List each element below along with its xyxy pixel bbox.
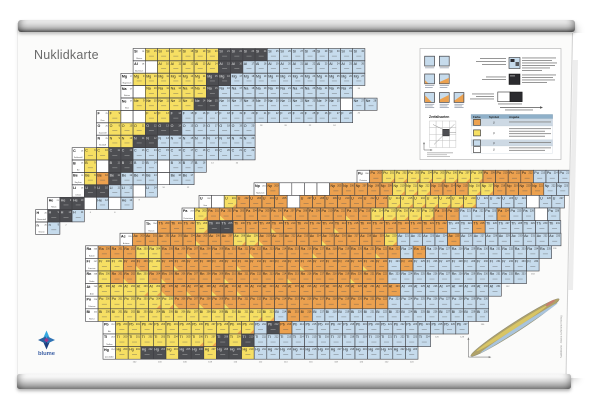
svg-text:Rn: Rn [112,272,117,276]
svg-text:212: 212 [426,184,431,187]
svg-text:Tl: Tl [167,335,170,339]
svg-text:At: At [275,285,278,289]
svg-text:213: 213 [304,235,309,238]
svg-text:Po: Po [338,297,342,301]
svg-text:Bi: Bi [452,310,455,314]
svg-text:221: 221 [370,247,375,250]
svg-text:224: 224 [408,298,413,301]
svg-text:214: 214 [282,285,287,288]
svg-text:Rn: Rn [439,272,444,276]
svg-text:203: 203 [161,336,166,339]
svg-text:220: 220 [358,260,363,263]
svg-text:At: At [124,285,127,289]
svg-text:230: 230 [484,310,489,313]
svg-text:226: 226 [433,247,438,250]
svg-text:Tl: Tl [117,335,120,339]
svg-text:Tl: Tl [243,335,246,339]
svg-text:Po: Po [200,297,204,301]
svg-text:Si: Si [268,50,271,54]
svg-text:221: 221 [467,210,472,213]
svg-text:Pu: Pu [408,171,412,175]
svg-text:Tl: Tl [192,335,195,339]
svg-text:n: n [37,223,39,227]
svg-text:227: 227 [464,323,469,326]
svg-text:Ne: Ne [354,99,359,103]
svg-text:206: 206 [241,222,246,225]
svg-text:Th: Th [524,222,528,226]
svg-text:228: 228 [459,298,464,301]
svg-text:U: U [540,196,543,200]
svg-text:Ac: Ac [209,234,213,238]
svg-text:Al: Al [195,62,198,66]
svg-text:N: N [134,136,137,140]
svg-text:206: 206 [453,172,458,175]
svg-text:218: 218 [333,247,338,250]
svg-text:231: 231 [496,247,501,250]
svg-text:C: C [219,149,222,153]
svg-text:Tl: Tl [205,335,208,339]
svg-text:Np: Np [545,184,550,188]
svg-text:217: 217 [320,298,325,301]
svg-text:226: 226 [547,197,552,200]
svg-text:209: 209 [219,247,224,250]
svg-text:Np: Np [457,184,462,188]
svg-text:215: 215 [354,222,359,225]
svg-text:Th: Th [423,222,427,226]
svg-text:Ra: Ra [351,247,356,251]
svg-text:Rn: Rn [288,272,293,276]
svg-text:233: 233 [522,273,527,276]
svg-text:Ac: Ac [323,234,327,238]
svg-text:Rn: Rn [351,272,356,276]
svg-text:225: 225 [438,323,443,326]
svg-text:Natrium: Natrium [124,94,131,97]
svg-text:Ne: Ne [280,99,285,103]
svg-text:200: 200 [165,222,170,225]
svg-text:Ac: Ac [373,234,377,238]
svg-text:Pa: Pa [221,209,225,213]
svg-text:C: C [171,149,174,153]
svg-text:O: O [110,124,113,128]
svg-text:227: 227 [560,197,565,200]
svg-text:233: 233 [556,235,561,238]
svg-text:Ra: Ra [200,247,205,251]
svg-text:Pa: Pa [271,209,275,213]
svg-text:219: 219 [442,210,447,213]
svg-text:219: 219 [345,273,350,276]
svg-text:Pb: Pb [154,322,158,326]
svg-text:B: B [73,161,76,165]
svg-text:218: 218 [333,310,338,313]
svg-text:At: At [477,285,480,289]
svg-text:Ac: Ac [524,234,528,238]
svg-text:203: 203 [144,298,149,301]
svg-text:O: O [134,124,137,128]
svg-text:207: 207 [194,273,199,276]
svg-text:210: 210 [345,197,350,200]
svg-text:207: 207 [363,184,368,187]
svg-text:Na: Na [280,87,285,91]
svg-text:Pa: Pa [397,209,401,213]
svg-text:213: 213 [270,260,275,263]
svg-text:217: 217 [338,348,343,351]
svg-text:Rn: Rn [464,272,469,276]
svg-text:Al: Al [268,62,271,66]
svg-text:Th: Th [398,222,402,226]
svg-text:204: 204 [216,222,221,225]
svg-text:Ac: Ac [297,234,301,238]
svg-text:205: 205 [169,260,174,263]
svg-text:202: 202 [131,285,136,288]
svg-text:Ne: Ne [232,99,237,103]
svg-text:210: 210 [291,222,296,225]
svg-text:204: 204 [156,310,161,313]
svg-text:Pa: Pa [448,209,452,213]
svg-text:218: 218 [333,285,338,288]
svg-text:Th: Th [335,222,339,226]
svg-text:Np: Np [507,184,512,188]
svg-text:U: U [225,196,228,200]
svg-text:200: 200 [123,348,128,351]
svg-text:227: 227 [446,260,451,263]
svg-text:226: 226 [433,273,438,276]
svg-text:221: 221 [370,273,375,276]
svg-text:Mg: Mg [183,74,188,78]
svg-text:At: At [99,285,102,289]
svg-text:213: 213 [383,197,388,200]
svg-text:Mg: Mg [256,74,261,78]
svg-text:213: 213 [270,285,275,288]
svg-text:231: 231 [496,273,501,276]
svg-text:Ra: Ra [212,247,217,251]
svg-text:219: 219 [380,235,385,238]
svg-text:Ac: Ac [310,234,314,238]
svg-text:203: 203 [178,235,183,238]
svg-text:Hg: Hg [192,348,197,352]
svg-text:226: 226 [433,310,438,313]
svg-text:214: 214 [282,247,287,250]
svg-text:219: 219 [345,310,350,313]
svg-text:C: C [232,149,235,153]
svg-text:210: 210 [232,260,237,263]
svg-text:211: 211 [262,336,266,339]
svg-text:O: O [146,124,149,128]
svg-text:14: 14 [211,162,214,164]
svg-text:Nuklidkarte · blume Lehrmittel: Nuklidkarte · blume Lehrmittel Verlag [559,315,563,358]
svg-text:Mg: Mg [341,74,346,78]
svg-text:200: 200 [140,235,145,238]
svg-text:Hg: Hg [331,348,336,352]
svg-text:Po: Po [414,297,418,301]
svg-text:Mg: Mg [268,74,273,78]
svg-text:Bi: Bi [301,310,304,314]
svg-text:22: 22 [309,125,312,127]
svg-text:208: 208 [241,235,246,238]
svg-text:Rn: Rn [364,272,369,276]
svg-text:200: 200 [274,184,279,187]
svg-text:221: 221 [388,336,393,339]
svg-text:205: 205 [186,336,191,339]
svg-text:At: At [490,285,493,289]
svg-text:Pa: Pa [246,209,250,213]
svg-text:Ne: Ne [207,99,212,103]
svg-text:203: 203 [161,323,166,326]
svg-text:208: 208 [207,298,212,301]
svg-text:208: 208 [207,260,212,263]
svg-text:U: U [326,196,329,200]
svg-text:26: 26 [358,88,361,90]
svg-text:213: 213 [270,298,275,301]
svg-text:201: 201 [118,285,123,288]
svg-text:Mg: Mg [317,74,322,78]
svg-text:Po: Po [137,297,141,301]
svg-text:202: 202 [131,298,136,301]
svg-text:At: At [225,285,228,289]
svg-text:223: 223 [396,260,401,263]
svg-text:Mg: Mg [280,74,285,78]
svg-text:Be: Be [85,174,89,178]
svg-text:224: 224 [443,235,448,238]
svg-text:217: 217 [380,222,385,225]
svg-text:Pu: Pu [396,171,400,175]
svg-text:Bi: Bi [187,310,190,314]
svg-text:Na: Na [293,87,298,91]
svg-text:222: 222 [401,323,406,326]
svg-text:Th: Th [537,222,541,226]
svg-text:At: At [414,285,417,289]
svg-text:203: 203 [203,222,208,225]
svg-text:Na: Na [317,87,322,91]
svg-text:Ra: Ra [175,247,180,251]
svg-text:Np: Np [419,184,424,188]
svg-text:Pb: Pb [255,322,259,326]
svg-text:blume: blume [38,351,56,357]
svg-text:231: 231 [531,235,536,238]
svg-text:217: 217 [320,310,325,313]
svg-text:At: At [301,285,304,289]
svg-text:C: C [158,149,161,153]
svg-text:Pu: Pu [421,171,425,175]
svg-text:Ne: Ne [195,99,200,103]
svg-text:Rn: Rn [414,272,419,276]
svg-text:Zerfallsarten: Zerfallsarten [429,115,449,119]
svg-text:225: 225 [421,273,426,276]
svg-text:217: 217 [320,273,325,276]
svg-text:Ra: Ra [401,247,406,251]
svg-text:Np: Np [268,184,273,188]
svg-text:Si: Si [219,50,222,54]
svg-text:Tl: Tl [180,335,183,339]
svg-text:Hg: Hg [280,348,285,352]
svg-text:206: 206 [199,348,204,351]
svg-text:200: 200 [106,298,111,301]
svg-text:232: 232 [544,235,549,238]
svg-text:Kohlenstoff: Kohlenstoff [74,156,83,159]
svg-text:208: 208 [375,184,380,187]
svg-text:205: 205 [440,172,445,175]
svg-text:Si: Si [256,50,259,54]
svg-text:Rn: Rn [401,272,406,276]
svg-text:Pa: Pa [435,209,439,213]
svg-text:Pb: Pb [432,322,436,326]
svg-text:Ra: Ra [99,247,104,251]
svg-text:205: 205 [169,273,174,276]
svg-text:Pb: Pb [343,322,347,326]
svg-text:Pb: Pb [180,322,184,326]
svg-text:213: 213 [366,210,371,213]
svg-text:Bi: Bi [364,310,367,314]
svg-text:Pa: Pa [548,209,552,213]
svg-text:Rn: Rn [250,272,255,276]
svg-text:U: U [452,196,455,200]
svg-text:Po: Po [452,297,456,301]
svg-text:212: 212 [371,197,376,200]
svg-text:211: 211 [245,298,249,301]
svg-text:202: 202 [131,310,136,313]
svg-text:201: 201 [118,260,123,263]
svg-text:Astat: Astat [90,292,94,295]
svg-text:Po: Po [212,297,216,301]
svg-text:C: C [110,149,113,153]
svg-text:Ra: Ra [427,247,432,251]
svg-text:206: 206 [278,210,283,213]
svg-text:At: At [338,285,341,289]
svg-text:Th: Th [196,222,200,226]
svg-text:Pb: Pb [205,322,209,326]
svg-text:Pa: Pa [208,209,212,213]
svg-text:Ac: Ac [159,234,163,238]
svg-text:Ra: Ra [364,247,369,251]
svg-text:Th: Th [146,222,150,226]
svg-text:Tl: Tl [293,335,296,339]
svg-text:228: 228 [459,260,464,263]
svg-text:227: 227 [446,273,451,276]
svg-text:230: 230 [518,235,523,238]
svg-text:At: At [464,285,467,289]
svg-text:Pa: Pa [322,209,326,213]
svg-text:224: 224 [426,336,431,339]
svg-text:Ac: Ac [537,234,541,238]
svg-text:He: He [97,198,102,202]
svg-text:Bor: Bor [77,169,80,172]
svg-text:228: 228 [459,247,464,250]
svg-text:Mg: Mg [293,74,298,78]
svg-text:Neutron: Neutron [39,231,45,234]
svg-text:213: 213 [270,273,275,276]
svg-text:203: 203 [144,285,149,288]
svg-text:Pu: Pu [446,171,450,175]
svg-text:228: 228 [518,222,523,225]
svg-text:210: 210 [232,310,237,313]
svg-text:214: 214 [282,310,287,313]
svg-text:220: 220 [526,184,531,187]
svg-text:Np: Np [431,184,436,188]
svg-text:At: At [427,285,430,289]
svg-text:225: 225 [421,310,426,313]
svg-text:Th: Th [486,222,490,226]
svg-text:216: 216 [421,197,426,200]
svg-text:Tl: Tl [255,335,258,339]
svg-text:229: 229 [471,298,476,301]
svg-text:Bi: Bi [464,310,467,314]
svg-text:215: 215 [295,247,300,250]
svg-text:Si: Si [329,50,332,54]
svg-text:Al: Al [341,62,344,66]
svg-text:205: 205 [265,210,270,213]
svg-text:222: 222 [383,260,388,263]
svg-text:Uran: Uran [203,204,207,207]
svg-text:Na: Na [256,87,261,91]
svg-text:205: 205 [169,298,174,301]
svg-text:Th: Th [234,222,238,226]
svg-text:Hg: Hg [104,348,109,352]
svg-text:At: At [250,285,253,289]
svg-text:Ac: Ac [134,234,138,238]
svg-text:Th: Th [499,222,503,226]
svg-text:Neon: Neon [125,108,129,110]
svg-text:Th: Th [474,222,478,226]
svg-text:Ac: Ac [222,234,226,238]
svg-text:228: 228 [493,235,498,238]
svg-text:Ra: Ra [149,247,154,251]
svg-text:Ne: Ne [158,99,163,103]
svg-text:214: 214 [300,348,305,351]
svg-text:Bi: Bi [401,310,404,314]
svg-text:Rn: Rn [313,272,318,276]
svg-text:Po: Po [250,297,254,301]
svg-text:Po: Po [99,297,103,301]
svg-text:Ra: Ra [527,247,532,251]
svg-text:221: 221 [484,197,489,200]
svg-text:Plutonium: Plutonium [360,179,368,182]
svg-text:C: C [134,149,137,153]
svg-text:227: 227 [446,298,451,301]
svg-text:220: 220 [375,348,380,351]
svg-text:Bi: Bi [338,310,341,314]
svg-text:Np: Np [368,184,373,188]
svg-text:Mg: Mg [244,74,249,78]
svg-text:Th: Th [310,222,314,226]
svg-text:U: U [313,196,316,200]
svg-text:Hg: Hg [230,348,235,352]
svg-text:Tl: Tl [104,335,107,339]
svg-text:223: 223 [430,235,435,238]
svg-text:211: 211 [262,348,266,351]
svg-text:Pa: Pa [233,209,237,213]
svg-text:Mg: Mg [158,74,163,78]
svg-text:Rn: Rn [452,272,457,276]
svg-text:226: 226 [468,235,473,238]
svg-text:216: 216 [325,348,330,351]
svg-text:Bi: Bi [275,310,278,314]
svg-text:204: 204 [191,235,196,238]
svg-text:Po: Po [389,297,393,301]
svg-text:215: 215 [391,210,396,213]
svg-text:217: 217 [489,184,494,187]
svg-text:122: 122 [385,362,389,364]
svg-text:216: 216 [307,298,312,301]
svg-text:Np: Np [356,184,361,188]
svg-text:Ra: Ra [389,247,394,251]
svg-text:Bi: Bi [212,310,215,314]
svg-text:207: 207 [254,222,259,225]
svg-text:Rn: Rn [326,272,331,276]
svg-text:Bi: Bi [225,310,228,314]
svg-text:Rn: Rn [162,272,167,276]
svg-text:Ra: Ra [301,247,306,251]
svg-text:226: 226 [493,222,498,225]
svg-text:At: At [149,285,152,289]
